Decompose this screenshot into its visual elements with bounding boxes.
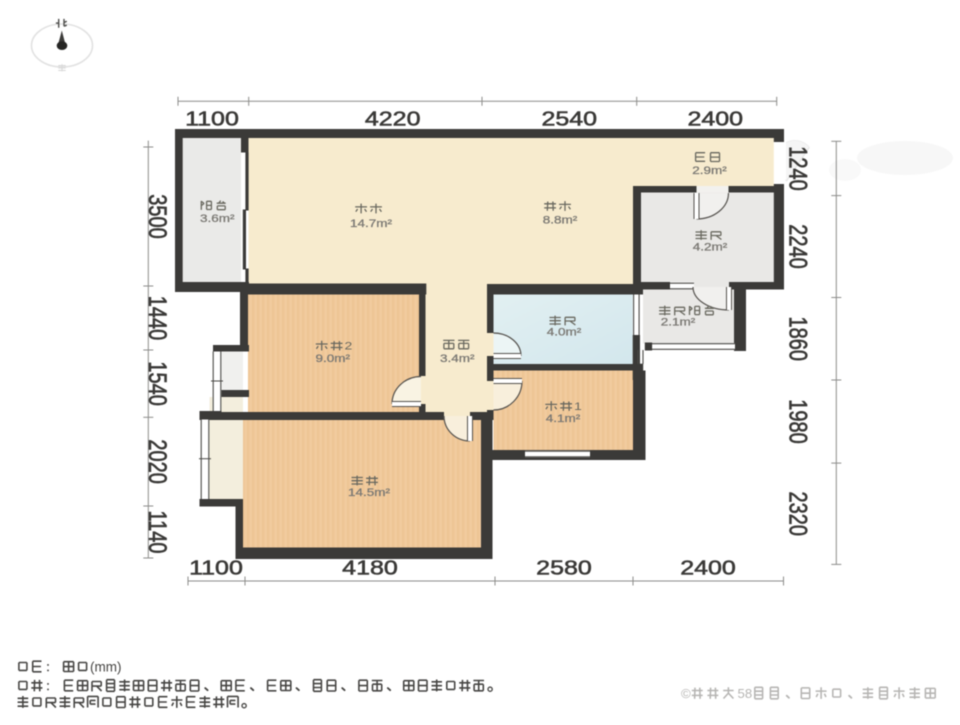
- svg-text:1100: 1100: [189, 557, 243, 579]
- svg-text:2: 2: [345, 340, 353, 352]
- svg-text:1: 1: [574, 401, 582, 413]
- svg-text:8.8m²: 8.8m²: [543, 214, 577, 226]
- svg-text:2580: 2580: [536, 557, 592, 579]
- svg-text:4180: 4180: [342, 557, 398, 579]
- svg-text:9.0m²: 9.0m²: [316, 352, 350, 364]
- svg-text:4.0m²: 4.0m²: [547, 326, 581, 338]
- svg-text:1860: 1860: [784, 317, 812, 361]
- svg-text:3500: 3500: [144, 194, 172, 238]
- svg-text:1440: 1440: [144, 296, 172, 340]
- svg-text:3.6m²: 3.6m²: [200, 212, 234, 224]
- svg-text:2.9m²: 2.9m²: [692, 164, 726, 176]
- svg-text:©: ©: [681, 686, 691, 701]
- svg-text:4.2m²: 4.2m²: [693, 241, 727, 253]
- svg-text:14.5m²: 14.5m²: [348, 486, 390, 498]
- svg-text:2020: 2020: [144, 439, 172, 483]
- svg-text:14.7m²: 14.7m²: [350, 217, 392, 229]
- svg-text:58: 58: [738, 686, 753, 701]
- svg-text:1140: 1140: [144, 511, 172, 554]
- svg-text:2540: 2540: [542, 108, 598, 130]
- svg-text:2.1m²: 2.1m²: [661, 316, 695, 328]
- svg-text:1100: 1100: [185, 108, 239, 130]
- svg-text:4220: 4220: [365, 108, 421, 130]
- svg-text:2240: 2240: [784, 224, 812, 268]
- svg-text:4.1m²: 4.1m²: [546, 412, 580, 424]
- svg-text:1980: 1980: [784, 399, 812, 443]
- svg-text:1540: 1540: [144, 361, 172, 405]
- svg-text:2400: 2400: [688, 108, 744, 130]
- svg-text:2320: 2320: [784, 492, 812, 536]
- svg-text:3.4m²: 3.4m²: [440, 352, 474, 364]
- svg-text:2400: 2400: [680, 557, 736, 579]
- svg-text:1240: 1240: [784, 146, 812, 190]
- svg-text:(mm): (mm): [90, 660, 121, 675]
